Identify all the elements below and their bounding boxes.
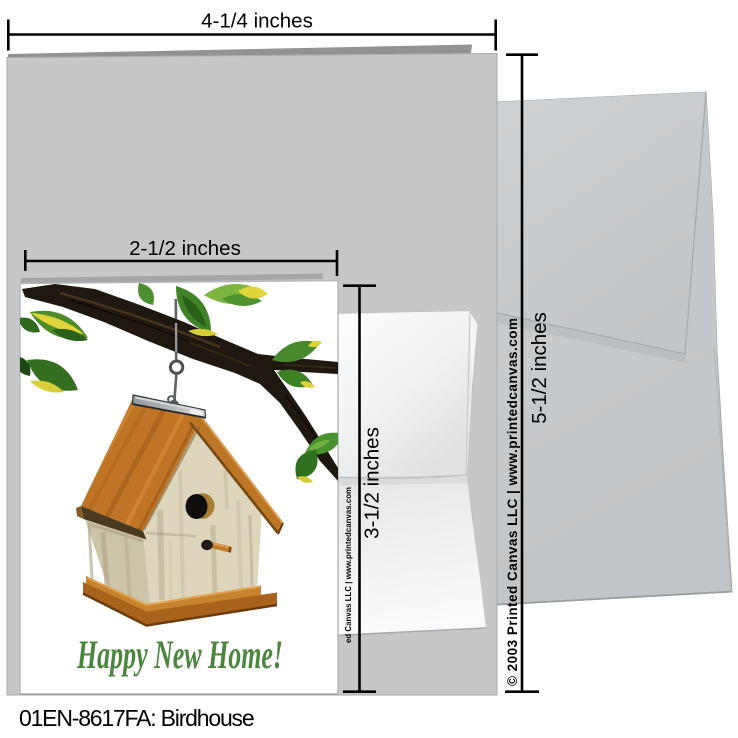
svg-text:01EN-8617FA: Birdhouse: 01EN-8617FA: Birdhouse	[19, 705, 254, 731]
svg-text:Happy New Home!: Happy New Home!	[76, 632, 283, 677]
svg-text:ed Canvas LLC | www.printedcan: ed Canvas LLC | www.printedcanvas.com	[344, 487, 353, 643]
svg-text:4-1/4 inches: 4-1/4 inches	[201, 10, 313, 33]
svg-text:5-1/2 inches: 5-1/2 inches	[528, 312, 551, 424]
svg-text:© 2003 Printed Canvas LLC | ww: © 2003 Printed Canvas LLC | www.printedc…	[505, 318, 520, 686]
svg-text:2-1/2 inches: 2-1/2 inches	[129, 237, 241, 260]
svg-text:3-1/2 inches: 3-1/2 inches	[361, 427, 384, 539]
